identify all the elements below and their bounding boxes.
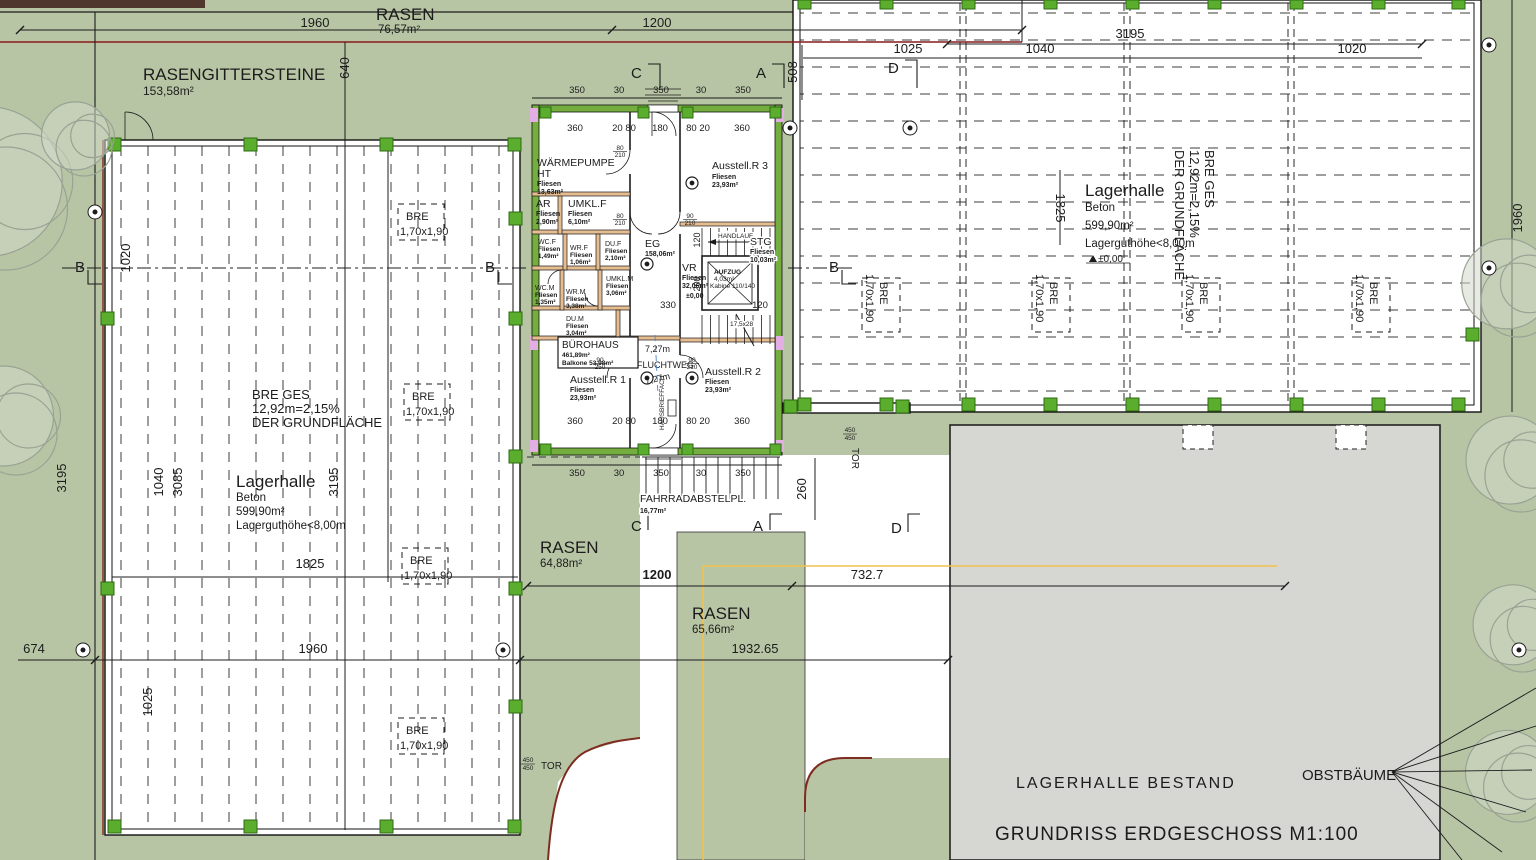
column-marker — [962, 398, 975, 411]
dim-1025-left: 1025 — [140, 688, 155, 717]
svg-text:30: 30 — [614, 85, 625, 96]
section-c-bottom: C — [631, 518, 642, 535]
bre-opening-label: BRE — [877, 282, 889, 305]
dim-1960-top: 1960 — [301, 15, 330, 30]
svg-text:EG: EG — [645, 238, 660, 250]
column-marker — [1126, 0, 1139, 9]
section-a-top: A — [756, 65, 766, 82]
svg-text:Fliesen: Fliesen — [570, 387, 594, 394]
label-rasen-s: RASEN — [692, 604, 751, 623]
existing-notch-2 — [1336, 425, 1366, 449]
label-rasen-sw-area: 64,88m² — [540, 558, 582, 570]
svg-text:80 20: 80 20 — [686, 123, 710, 134]
top-boundary-strip — [0, 0, 205, 8]
column-marker — [1452, 398, 1465, 411]
svg-text:2,90m²: 2,90m² — [536, 219, 559, 226]
hall-right-hatch — [800, 3, 1474, 405]
column-marker — [508, 820, 521, 833]
svg-text:Fliesen: Fliesen — [537, 181, 561, 188]
svg-text:210: 210 — [685, 220, 696, 227]
bre-opening-label: 1,70x1,90 — [404, 570, 452, 582]
svg-text:360: 360 — [734, 123, 750, 134]
svg-text:23,93m²: 23,93m² — [570, 395, 597, 402]
bre-opening-label: BRE — [406, 725, 429, 737]
bre-opening-label: 1,70x1,90 — [400, 226, 448, 238]
column-marker — [896, 400, 909, 413]
label-existing-hall: LAGERHALLE BESTAND — [1016, 775, 1236, 792]
column-marker — [509, 450, 522, 463]
dim-7327: 732.7 — [851, 567, 884, 582]
label-rasen-s-area: 65,66m² — [692, 624, 734, 636]
svg-text:20 80: 20 80 — [612, 416, 636, 427]
svg-text:Ausstell.R 1: Ausstell.R 1 — [570, 374, 626, 386]
dim-1200-bottom: 1200 — [643, 567, 672, 582]
svg-text:STG: STG — [750, 236, 772, 248]
svg-text:Fliesen: Fliesen — [566, 296, 588, 303]
column-marker — [1208, 0, 1221, 9]
dim-1960-right: 1960 — [1510, 204, 1525, 233]
label-gittersteine: RASENGITTERSTEINE — [143, 65, 325, 84]
svg-text:210: 210 — [615, 152, 626, 159]
floor-plan-page: BRE1,70x1,90BRE1,70x1,90BRE1,70x1,90BRE1… — [0, 0, 1536, 860]
svg-text:Fliesen: Fliesen — [535, 292, 557, 299]
column-marker — [380, 820, 393, 833]
dim-508: 508 — [785, 61, 800, 83]
section-b-right: B — [829, 259, 839, 276]
svg-text:7,27m: 7,27m — [645, 344, 670, 354]
svg-text:13,63m²: 13,63m² — [537, 189, 564, 196]
rasen-center-patch — [677, 532, 805, 860]
column-marker — [540, 107, 551, 118]
svg-text:450: 450 — [845, 435, 856, 442]
svg-text:12,92m=2,15%: 12,92m=2,15% — [1187, 150, 1202, 238]
column-marker — [682, 107, 693, 118]
svg-text:Fliesen: Fliesen — [568, 211, 592, 218]
label-gittersteine-area: 153,58m² — [143, 84, 194, 98]
svg-text:Fliesen: Fliesen — [606, 283, 628, 290]
svg-text:UMKL.F: UMKL.F — [568, 198, 607, 210]
bre-opening-label: BRE — [412, 391, 435, 403]
column-marker — [108, 820, 121, 833]
hall-left-note: Lagerguthöhe<8,00m — [236, 520, 346, 532]
label-fahrrad: FAHRRADABSTELPL. — [640, 493, 746, 505]
hall-left-mat: Beton — [236, 492, 266, 504]
dim-1825-left: 1825 — [296, 556, 325, 571]
svg-text:Fliesen: Fliesen — [705, 379, 729, 386]
svg-text:DER GRUNDFLÄCHE: DER GRUNDFLÄCHE — [1172, 150, 1187, 280]
column-marker — [1290, 398, 1303, 411]
dim-1200-top: 1200 — [643, 15, 672, 30]
svg-text:350: 350 — [569, 468, 585, 479]
floor-plan-svg: BRE1,70x1,90BRE1,70x1,90BRE1,70x1,90BRE1… — [0, 0, 1536, 860]
tree — [42, 102, 110, 170]
svg-text:1,06m²: 1,06m² — [570, 259, 591, 266]
column-marker — [638, 107, 649, 118]
column-marker — [101, 312, 114, 325]
svg-text:3,06m²: 3,06m² — [606, 290, 627, 297]
hall-left-bre1: BRE GES — [252, 387, 310, 402]
bre-opening-label: BRE — [406, 211, 429, 223]
svg-text:Kabine 110/140: Kabine 110/140 — [710, 283, 755, 290]
svg-text:WR.M: WR.M — [566, 289, 586, 296]
dim-260: 260 — [794, 478, 809, 500]
svg-text:90: 90 — [688, 357, 696, 364]
svg-text:HT: HT — [537, 168, 552, 180]
svg-text:17,5x28: 17,5x28 — [730, 321, 754, 328]
dim-1040-left: 1040 — [151, 468, 166, 497]
svg-text:Ausstell.R 2: Ausstell.R 2 — [705, 366, 761, 378]
column-marker — [508, 138, 521, 151]
bre-opening-label: 1,70x1,90 — [406, 406, 454, 418]
svg-text:Fliesen: Fliesen — [536, 211, 560, 218]
hall-right-mat: Beton — [1085, 202, 1115, 214]
dim-1960-bottom: 1960 — [299, 641, 328, 656]
svg-text:23,93m²: 23,93m² — [712, 182, 739, 189]
column-marker — [101, 582, 114, 595]
label-rasen-sw: RASEN — [540, 538, 599, 557]
bre-opening-label: 1,70x1,90 — [1183, 274, 1195, 322]
column-marker — [1044, 398, 1057, 411]
column-marker — [798, 0, 811, 9]
dim-1020-left: 1020 — [118, 244, 133, 273]
svg-text:AR: AR — [536, 198, 551, 210]
svg-text:WR.F: WR.F — [570, 245, 588, 252]
svg-text:30: 30 — [696, 85, 707, 96]
svg-text:450: 450 — [523, 757, 534, 764]
section-b-mid: B — [485, 259, 495, 276]
svg-text:1,35m²: 1,35m² — [535, 299, 556, 306]
dim-3085-left: 3085 — [170, 468, 185, 497]
column-marker — [509, 582, 522, 595]
column-marker — [1126, 398, 1139, 411]
hausbrieffach: HAUSBRIEFFACH — [659, 375, 666, 430]
svg-text:Fliesen: Fliesen — [570, 252, 592, 259]
svg-text:BRE GES: BRE GES — [1202, 150, 1217, 208]
hall-right-area: 599,90m² — [1085, 220, 1134, 232]
column-marker — [509, 212, 522, 225]
section-c-top: C — [631, 65, 642, 82]
column-marker — [880, 398, 893, 411]
svg-text:250: 250 — [595, 364, 606, 371]
bre-opening-label: BRE — [1197, 282, 1209, 305]
existing-hall — [950, 425, 1440, 860]
column-marker — [540, 444, 551, 455]
existing-notch-1 — [1183, 425, 1213, 449]
svg-text:AUFZUG: AUFZUG — [714, 269, 741, 276]
bre-opening-label: 1,70x1,90 — [1353, 274, 1365, 322]
svg-text:350: 350 — [735, 85, 751, 96]
svg-text:360: 360 — [734, 416, 750, 427]
svg-text:DU.F: DU.F — [605, 241, 621, 248]
svg-text:450: 450 — [845, 427, 856, 434]
hall-left-bre2: 12,92m=2,15% — [252, 401, 340, 416]
dim-3195-hall: 3195 — [326, 468, 341, 497]
dim-1025-top: 1025 — [894, 41, 923, 56]
svg-text:VR: VR — [682, 262, 697, 274]
svg-text:4,03m²: 4,03m² — [714, 276, 735, 283]
svg-text:Fliesen: Fliesen — [682, 275, 706, 282]
dim-3195-strip: 3195 — [54, 464, 69, 493]
column-marker — [1372, 0, 1385, 9]
svg-text:330: 330 — [660, 300, 676, 311]
dim-1825-right: 1825 — [1053, 194, 1068, 223]
bre-opening-label: 1,70x1,90 — [1033, 274, 1045, 322]
svg-text:90: 90 — [686, 213, 694, 220]
svg-text:DU.M: DU.M — [566, 316, 584, 323]
column-marker — [770, 107, 781, 118]
svg-text:350: 350 — [653, 85, 669, 96]
svg-text:HANDLAUF: HANDLAUF — [718, 233, 753, 240]
column-marker — [1372, 398, 1385, 411]
label-rasen-top-area: 76,57m² — [378, 24, 420, 36]
svg-text:TOR: TOR — [849, 448, 860, 469]
svg-text:210: 210 — [687, 364, 698, 371]
svg-text:360: 360 — [567, 416, 583, 427]
section-d-bottom: D — [891, 520, 902, 537]
svg-text:Fliesen: Fliesen — [750, 249, 774, 256]
dim-1040-top: 1040 — [1026, 41, 1055, 56]
svg-text:32,06m²: 32,06m² — [682, 283, 709, 290]
svg-text:80: 80 — [616, 145, 624, 152]
svg-text:360: 360 — [567, 123, 583, 134]
label-rasen-top: RASEN — [376, 5, 435, 24]
svg-text:3,38m²: 3,38m² — [566, 303, 587, 310]
rasen-se-patch — [805, 758, 950, 860]
dim-3195-top: 3195 — [1116, 26, 1145, 41]
column-marker — [1208, 398, 1221, 411]
bre-opening-label: 1,70x1,90 — [400, 740, 448, 752]
page-title: GRUNDRISS ERDGESCHOSS M1:100 — [995, 824, 1359, 845]
section-b-left: B — [75, 259, 85, 276]
column-marker — [380, 138, 393, 151]
svg-text:20 80: 20 80 — [612, 123, 636, 134]
dim-1020-top: 1020 — [1338, 41, 1367, 56]
buerohaus-name: BÜROHAUS — [562, 339, 619, 351]
svg-text:Ausstell.R 3: Ausstell.R 3 — [712, 160, 768, 172]
svg-text:450: 450 — [523, 765, 534, 772]
column-marker — [509, 700, 522, 713]
svg-text:90: 90 — [596, 357, 604, 364]
svg-text:TOR: TOR — [541, 761, 562, 772]
column-marker — [1044, 0, 1057, 9]
column-marker — [1466, 328, 1479, 341]
bre-opening-label: BRE — [1367, 282, 1379, 305]
svg-text:350: 350 — [569, 85, 585, 96]
svg-text:80 20: 80 20 — [686, 416, 710, 427]
dim-674: 674 — [23, 641, 45, 656]
svg-text:WC.M: WC.M — [535, 285, 555, 292]
svg-text:6,10m²: 6,10m² — [568, 219, 591, 226]
svg-text:2,10m²: 2,10m² — [605, 255, 626, 262]
svg-text:Fliesen: Fliesen — [605, 248, 627, 255]
column-marker — [880, 0, 893, 9]
column-marker — [962, 0, 975, 9]
svg-text:Fliesen: Fliesen — [712, 174, 736, 181]
svg-text:FLUCHTWEG: FLUCHTWEG — [637, 360, 694, 370]
column-marker — [244, 138, 257, 151]
svg-text:350: 350 — [735, 468, 751, 479]
column-marker — [798, 398, 811, 411]
svg-text:158,06m²: 158,06m² — [645, 251, 676, 258]
hall-left-area: 599,90m² — [236, 506, 285, 518]
buerohaus-area: 461,89m² — [562, 352, 591, 359]
svg-text:WC.F: WC.F — [538, 239, 556, 246]
bre-opening-label: BRE — [410, 555, 433, 567]
svg-text:30: 30 — [614, 468, 625, 479]
svg-text:210: 210 — [615, 220, 626, 227]
svg-text:UMKL.M: UMKL.M — [606, 276, 633, 283]
column-marker — [638, 444, 649, 455]
column-marker — [244, 820, 257, 833]
hall-right-name: Lagerhalle — [1085, 181, 1164, 200]
column-marker — [1290, 0, 1303, 9]
label-fahrrad-area: 16,77m² — [640, 508, 667, 515]
hall-left-bre3: DER GRUNDFLÄCHE — [252, 415, 382, 430]
bre-opening-label: BRE — [1047, 282, 1059, 305]
svg-text:Fliesen: Fliesen — [566, 323, 588, 330]
column-marker — [682, 444, 693, 455]
svg-text:Fliesen: Fliesen — [538, 246, 560, 253]
svg-text:1,49m²: 1,49m² — [538, 253, 559, 260]
dim-1932: 1932.65 — [732, 641, 779, 656]
column-marker — [1452, 0, 1465, 9]
svg-text:30: 30 — [696, 468, 707, 479]
hall-left-name: Lagerhalle — [236, 472, 315, 491]
bre-opening-label: 1,70x1,90 — [863, 274, 875, 322]
svg-text:350: 350 — [653, 468, 669, 479]
dim-640: 640 — [337, 57, 352, 79]
column-marker — [509, 312, 522, 325]
svg-text:180: 180 — [652, 123, 668, 134]
section-a-bottom: A — [753, 518, 763, 535]
label-obstbaeume: OBSTBÄUME — [1302, 767, 1396, 784]
column-marker — [784, 400, 797, 413]
svg-text:120: 120 — [752, 300, 768, 311]
svg-text:3,04m²: 3,04m² — [566, 330, 587, 337]
svg-text:10,03m²: 10,03m² — [750, 257, 777, 264]
column-marker — [770, 444, 781, 455]
section-d-top: D — [888, 60, 899, 77]
svg-text:±0,00: ±0,00 — [686, 293, 704, 300]
dim-120-v: 120 — [692, 232, 702, 247]
svg-text:80: 80 — [616, 213, 624, 220]
svg-text:23,93m²: 23,93m² — [705, 387, 732, 394]
